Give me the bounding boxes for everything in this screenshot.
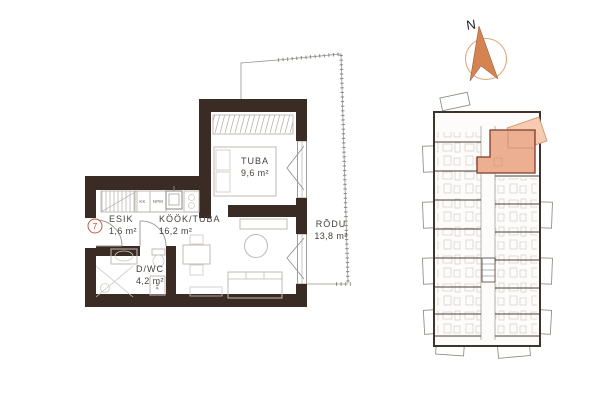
room-area-rodu: 13,8 m² <box>314 231 347 241</box>
wardrobe <box>213 115 293 134</box>
floorplan-page: KK NPM PM ESIK 1,6 m² KÖÖK/TUBA 16,2 m² … <box>0 0 600 400</box>
tv-bench <box>240 219 287 229</box>
room-area-kook-tuba: 16,2 m² <box>159 226 192 236</box>
overview-stair-core <box>482 258 495 282</box>
apartment-plan: KK NPM PM ESIK 1,6 m² KÖÖK/TUBA 16,2 m² … <box>85 54 352 307</box>
unit-number: 7 <box>93 222 98 231</box>
room-label-kook-tuba: KÖÖK/TUBA <box>159 214 221 224</box>
dishwasher-label: NPM <box>153 199 163 204</box>
north-label: N <box>465 17 476 33</box>
room-area-esik: 1,6 m² <box>109 226 137 236</box>
floorplan-drawing: KK NPM PM ESIK 1,6 m² KÖÖK/TUBA 16,2 m² … <box>0 0 600 400</box>
room-label-dwc: D/WC <box>136 264 164 274</box>
living-furniture <box>183 219 287 298</box>
room-area-dwc: 4,2 m² <box>136 276 164 286</box>
room-label-tuba: TUBA <box>241 156 269 166</box>
room-label-rodu: RÕDU <box>316 219 347 229</box>
round-table <box>245 235 268 258</box>
shower <box>96 266 133 297</box>
building-overview-map <box>423 92 553 358</box>
room-area-tuba: 9,6 m² <box>241 168 269 178</box>
stove <box>184 191 199 212</box>
fridge-label: KK <box>139 199 145 204</box>
dining-set <box>183 235 210 275</box>
north-compass: N <box>465 17 506 81</box>
north-arrow-icon <box>470 26 498 81</box>
unit-number-badge: 7 <box>88 219 102 233</box>
room-label-esik: ESIK <box>109 214 134 224</box>
